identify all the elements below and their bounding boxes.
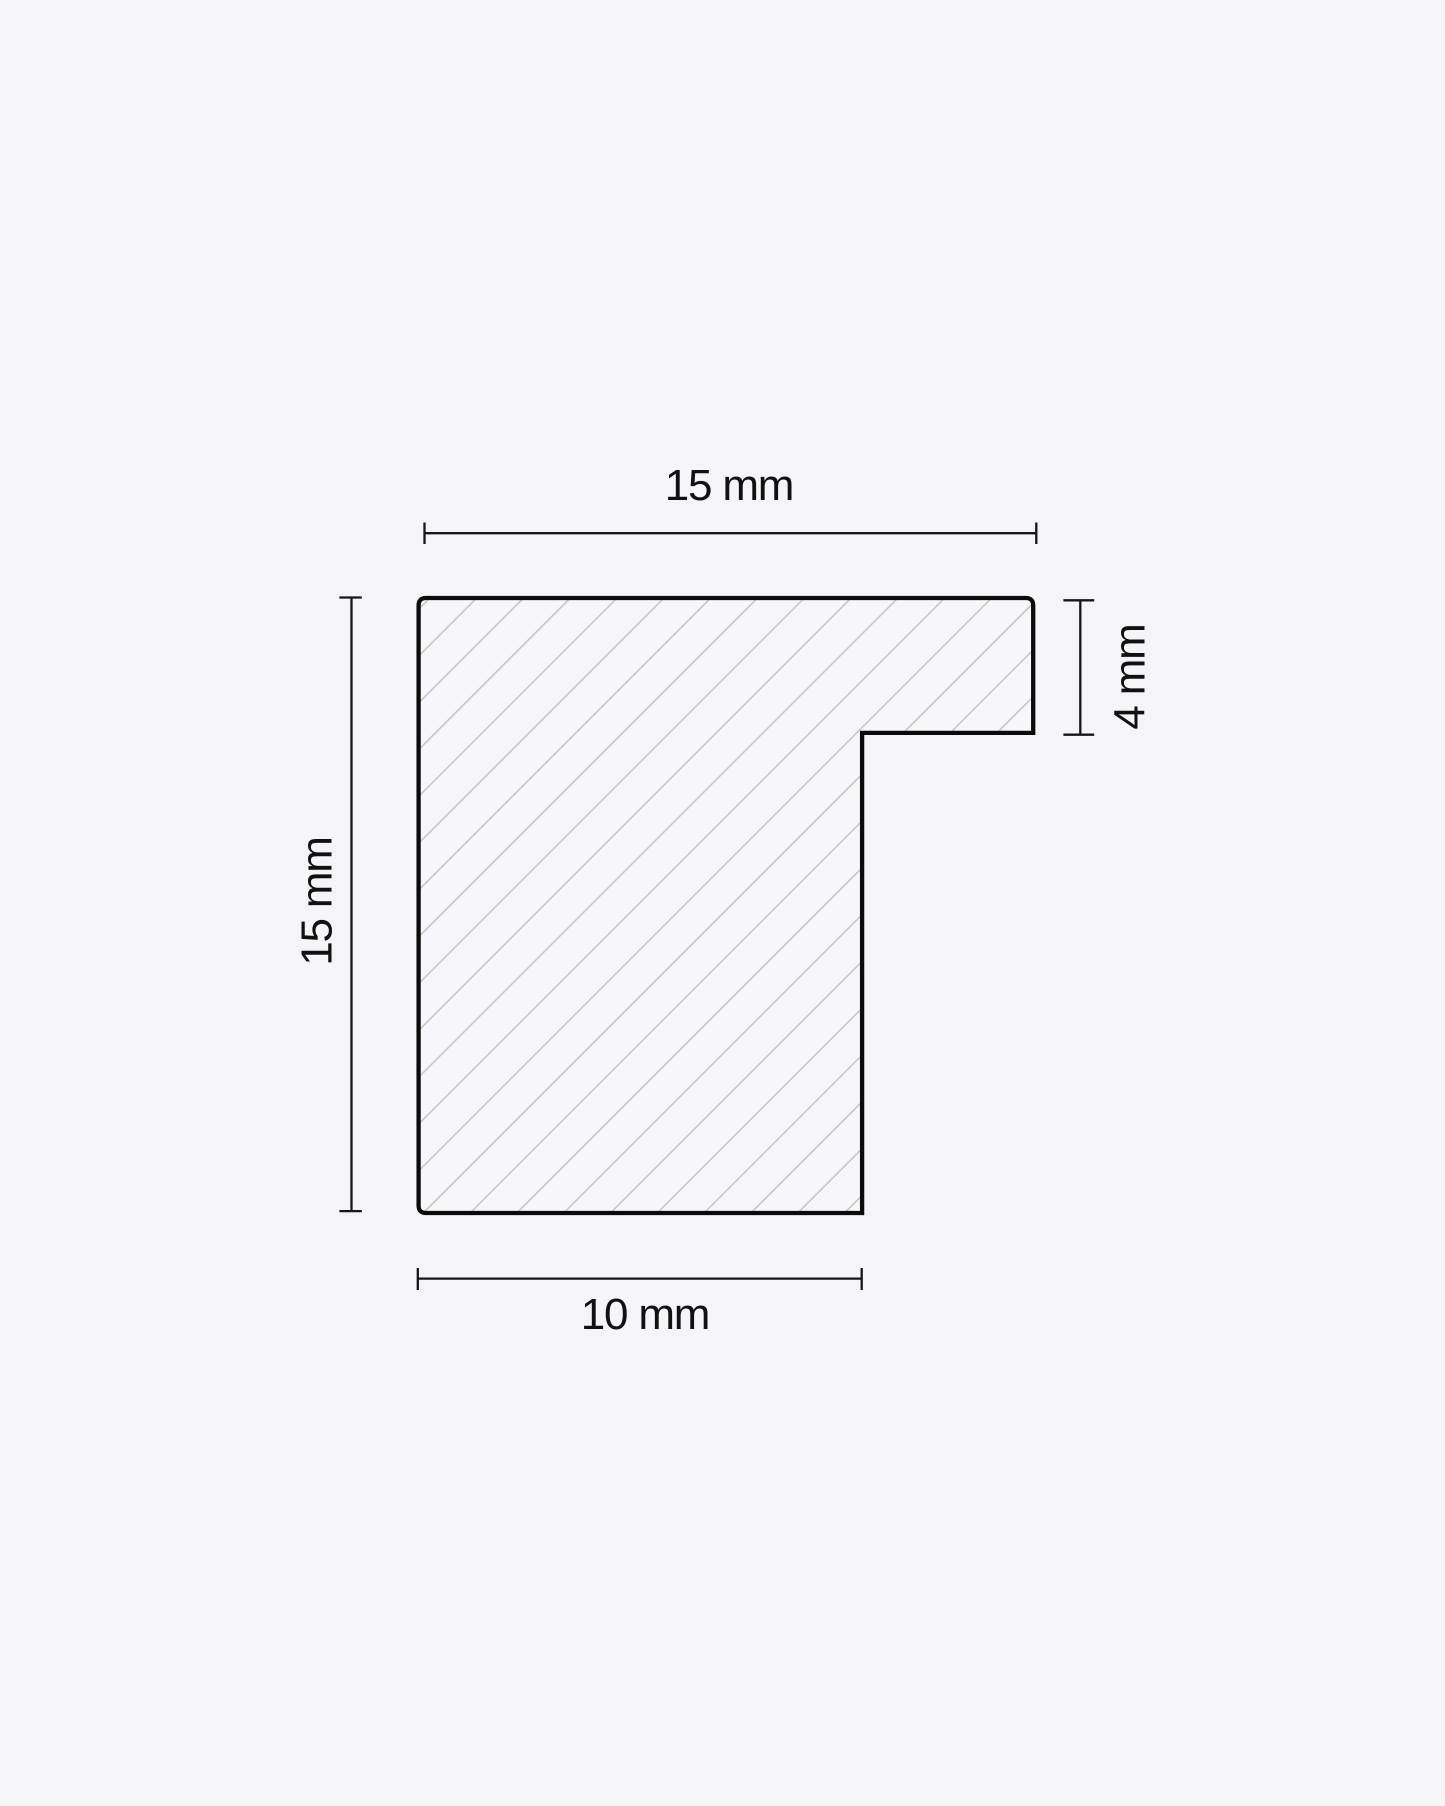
svg-text:15 mm: 15 mm — [292, 837, 341, 965]
svg-text:10 mm: 10 mm — [581, 1290, 709, 1339]
svg-text:15 mm: 15 mm — [665, 461, 793, 510]
svg-text:4 mm: 4 mm — [1106, 624, 1155, 729]
